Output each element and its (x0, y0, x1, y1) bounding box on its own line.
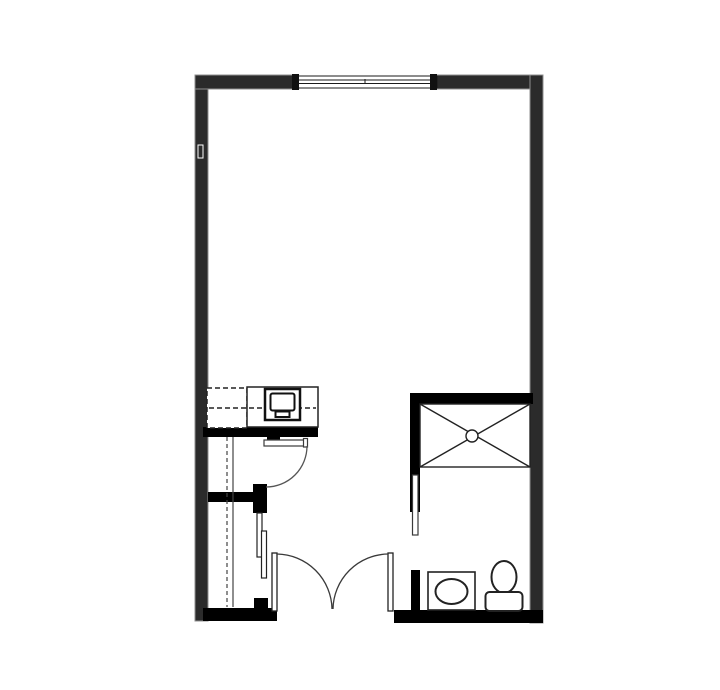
bathroom-sliding-door-panel (413, 475, 419, 535)
top-wall-left-segment (195, 75, 293, 89)
corridor-door-swing-arc (266, 446, 307, 487)
closet-sliding-panel-back (262, 531, 267, 578)
closet-door-jamb-upper (253, 484, 267, 513)
microwave-handle (276, 412, 290, 418)
wall-outlet (198, 145, 203, 158)
window-jamb-right (430, 74, 437, 90)
right-wall (530, 75, 543, 623)
corridor-door-leaf (264, 440, 304, 446)
shower-drain (466, 430, 478, 442)
toilet-bowl (492, 561, 517, 593)
sink-basin (436, 579, 468, 604)
french-door-right-swing-arc (333, 554, 388, 609)
top-wall-right-segment (437, 75, 543, 89)
window-jamb-left (292, 74, 299, 90)
french-door-left-leaf (272, 553, 277, 611)
toilet-tank (486, 592, 523, 611)
corridor-door-leaf-cap (304, 439, 308, 448)
floor-plan-canvas (0, 0, 720, 690)
closet-mid-wall (208, 492, 254, 502)
shower-top-wall (410, 393, 533, 404)
microwave-door (271, 394, 295, 411)
bottom-wall-left (203, 608, 277, 621)
french-door-right-leaf (388, 553, 393, 611)
french-door-left-swing-arc (277, 554, 332, 609)
bathroom-door-jamb-lower (411, 570, 420, 612)
floor-plan-drawing (0, 0, 720, 690)
